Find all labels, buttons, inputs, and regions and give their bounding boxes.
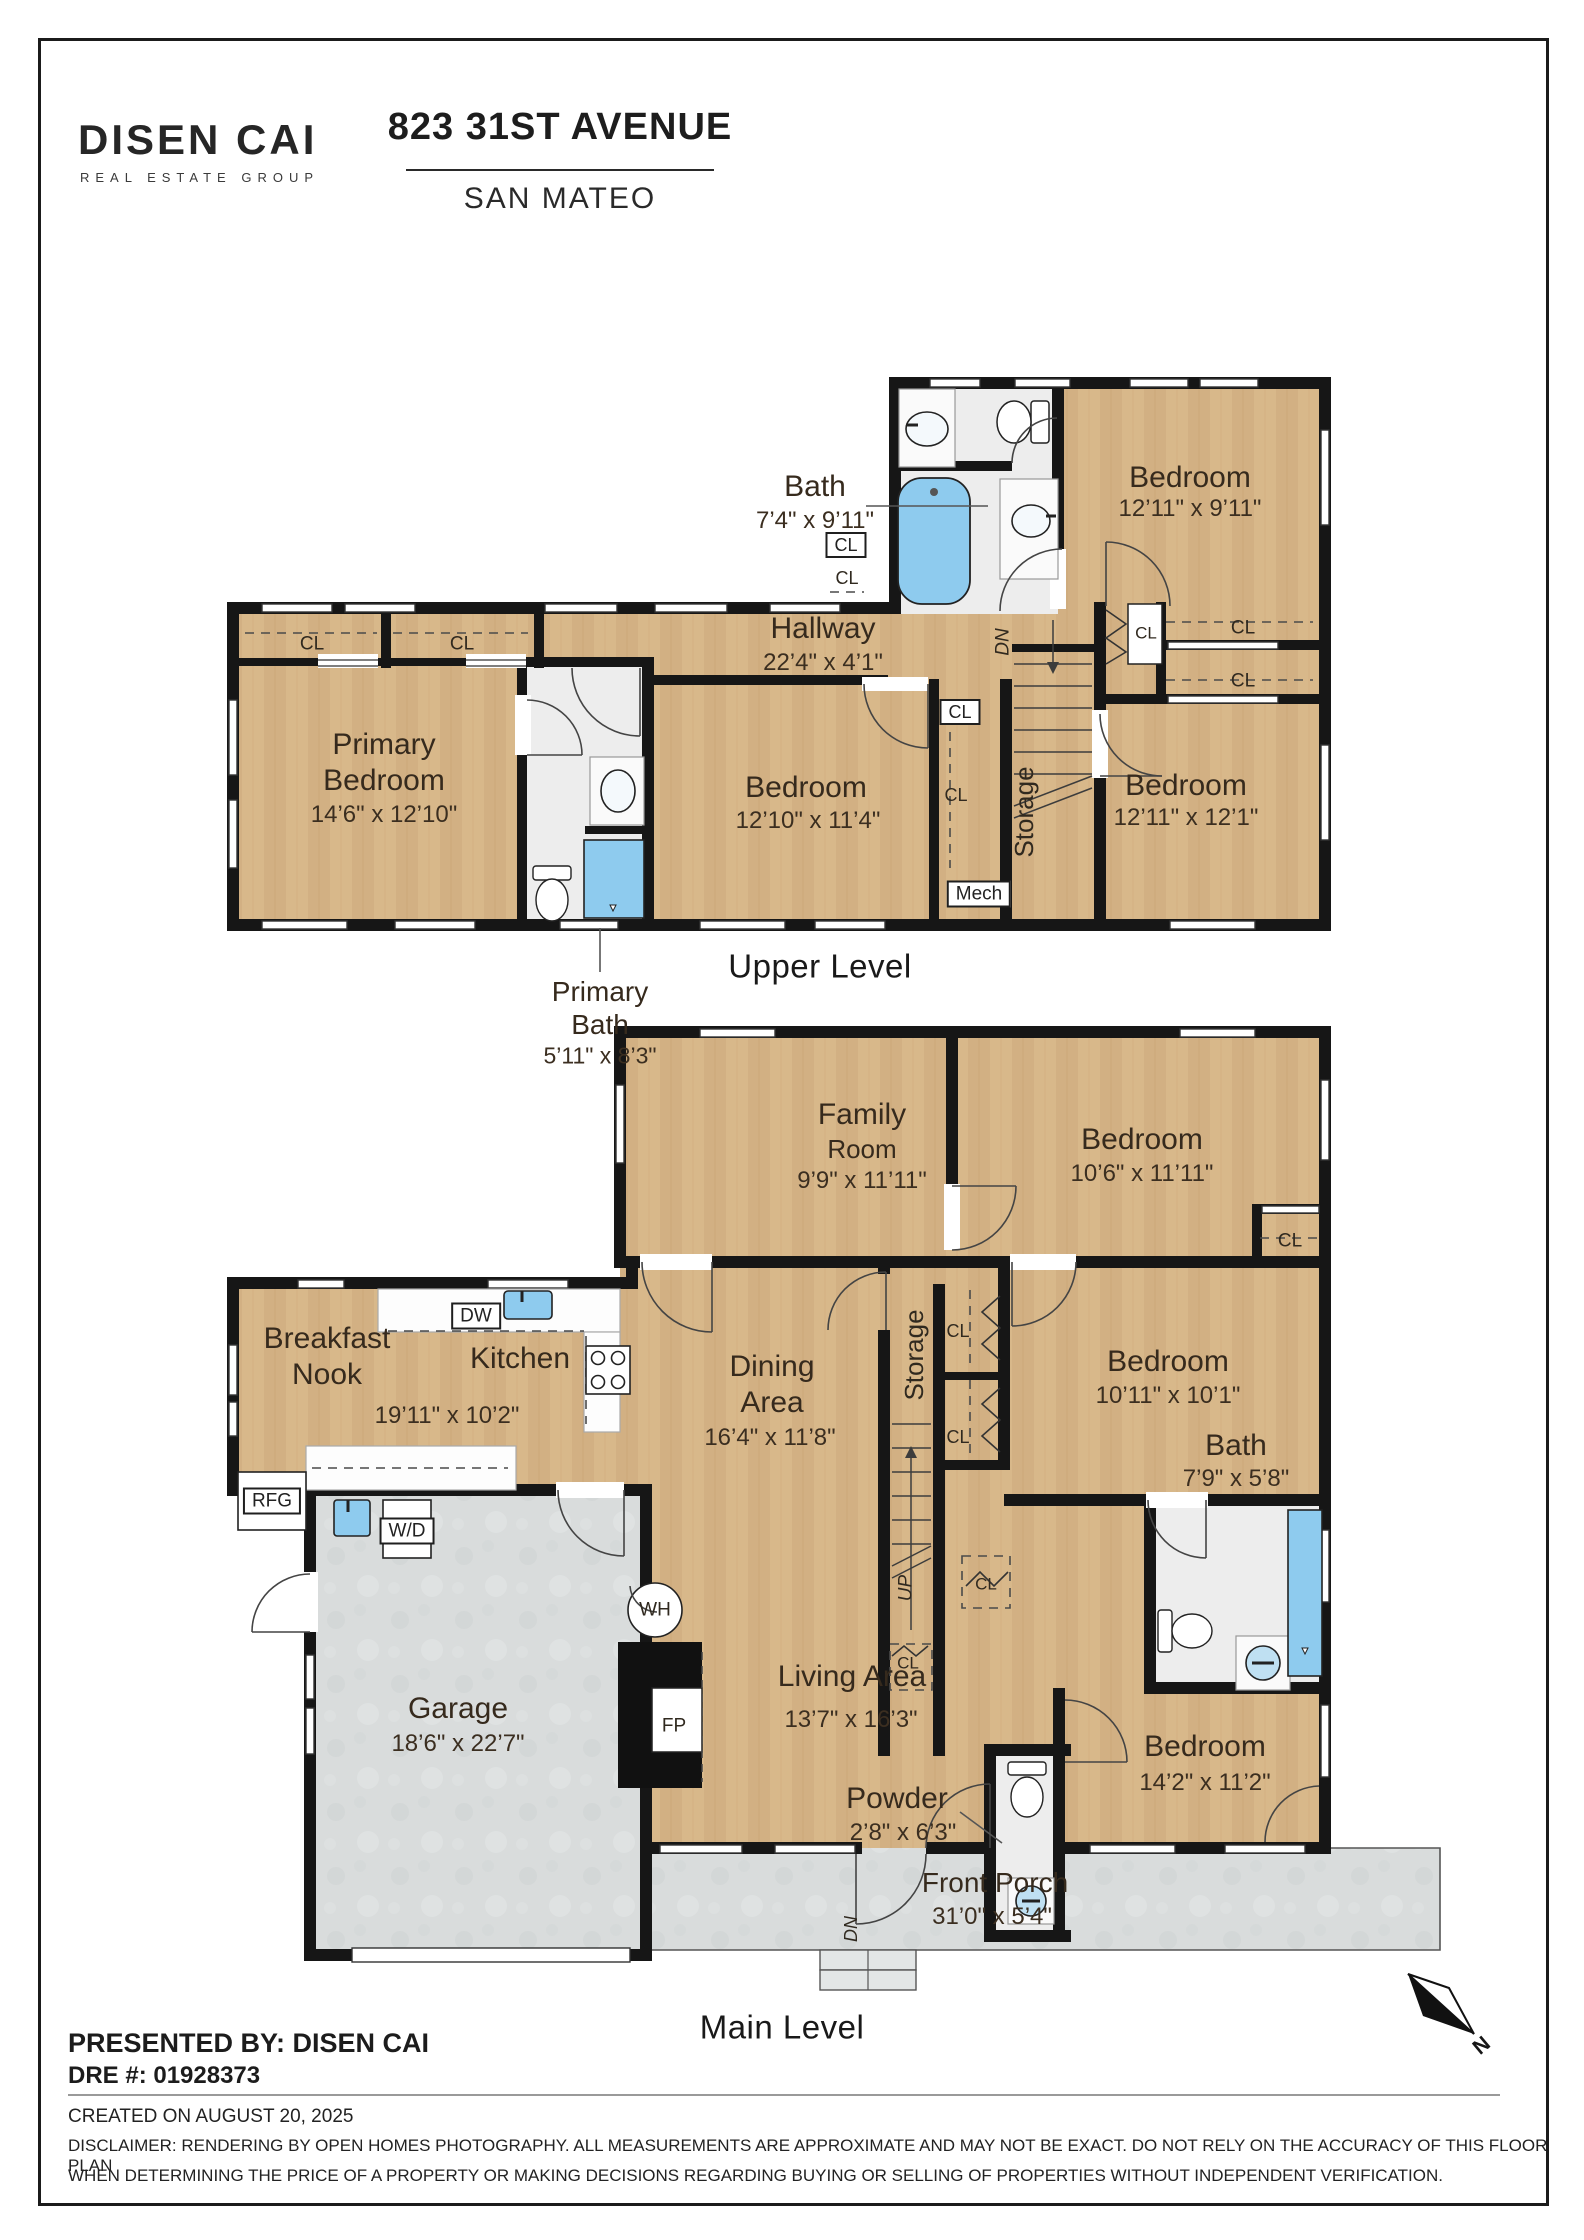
annotation-label: Storage [901, 1309, 927, 1400]
page-subtitle: SAN MATEO [380, 182, 740, 216]
room-name-label: Kitchen [470, 1344, 570, 1374]
annotation-label: CL [1135, 625, 1157, 642]
room-name-label: Bedroom [745, 773, 867, 803]
room-dims-label: 9’9" x 11’11" [797, 1169, 927, 1193]
room-name-label: Bedroom [1081, 1125, 1203, 1155]
presented-by-text: PRESENTED BY: DISEN CAI [68, 2028, 429, 2059]
annotation-label: DN [994, 628, 1013, 655]
annotation-label: CL [946, 1428, 969, 1446]
room-name-label: Front Porch [922, 1869, 1068, 1897]
annotation-label: CL [1231, 619, 1255, 638]
room-name-label: Dining [729, 1352, 814, 1382]
north-arrow-icon [1408, 1974, 1474, 2034]
annotation-label: CL [825, 532, 866, 558]
room-name-label: Nook [292, 1360, 362, 1390]
room-name-label: Room [827, 1136, 896, 1162]
room-dims-label: 10’6" x 11’11" [1071, 1162, 1214, 1186]
annotation-label: CL [1231, 672, 1255, 691]
room-name-label: Area [740, 1388, 803, 1418]
annotation-label: Storage [1011, 766, 1037, 857]
room-dims-label: 12’11" x 9’11" [1119, 497, 1262, 521]
room-dims-label: 14’2" x 11’2" [1139, 1771, 1270, 1795]
annotation-label: CL [939, 699, 980, 725]
footer-divider [68, 2094, 1500, 2096]
room-dims-label: 16’4" x 11’8" [704, 1426, 835, 1450]
room-name-label: Breakfast [264, 1324, 391, 1354]
dre-number-text: DRE #: 01928373 [68, 2062, 260, 2090]
room-name-label: Bath [784, 472, 846, 502]
room-dims-label: 5’11" x 8’3" [543, 1045, 656, 1068]
annotation-label: CL [835, 569, 858, 587]
annotation-label: CL [897, 1655, 919, 1672]
room-name-label: Bedroom [1107, 1347, 1229, 1377]
annotation-label: CL [300, 635, 324, 654]
room-dims-label: 10’11" x 10’1" [1096, 1384, 1241, 1408]
room-name-label: Bath [571, 1011, 629, 1039]
room-dims-label: 2’8" x 6’3" [850, 1821, 956, 1845]
level-title: Upper Level [728, 950, 911, 983]
room-dims-label: 12’10" x 11’4" [736, 809, 881, 833]
room-name-label: Primary [552, 978, 648, 1006]
floor-plan-flyer: DISEN CAI REAL ESTATE GROUP 823 31ST AVE… [0, 0, 1584, 2240]
room-name-label: Bedroom [1125, 771, 1247, 801]
room-dims-label: 7’9" x 5’8" [1183, 1467, 1289, 1491]
annotation-label: DW [451, 1303, 501, 1330]
annotation-label: CL [946, 1322, 969, 1340]
created-on-text: CREATED ON AUGUST 20, 2025 [68, 2106, 353, 2128]
annotation-label: CL [944, 786, 967, 804]
page-title: 823 31ST AVENUE [380, 106, 740, 149]
annotation-label: WH [639, 1601, 671, 1620]
annotation-label: CL [450, 635, 474, 654]
room-name-label: Hallway [770, 614, 875, 644]
room-name-label: Bedroom [1144, 1732, 1266, 1762]
room-dims-label: 19’11" x 10’2" [375, 1404, 520, 1428]
room-dims-label: 12’11" x 12’1" [1114, 806, 1259, 830]
room-dims-label: 18’6" x 22’7" [391, 1732, 524, 1756]
room-name-label: Powder [846, 1784, 948, 1814]
annotation-label: Mech [947, 881, 1011, 908]
annotation-label: UP [897, 1575, 916, 1601]
brand-tagline: REAL ESTATE GROUP [80, 170, 319, 185]
room-dims-label: 14’6" x 12’10" [311, 803, 457, 827]
room-dims-label: 22’4" x 4’1" [763, 651, 883, 675]
annotation-label: CL [975, 1576, 997, 1593]
room-name-label: Garage [408, 1694, 508, 1724]
level-title: Main Level [700, 2011, 865, 2044]
title-underline [406, 169, 714, 171]
room-name-label: Bedroom [1129, 463, 1251, 493]
annotation-label: FP [662, 1717, 686, 1736]
annotation-label: CL [1278, 1232, 1302, 1251]
disclaimer-line-2: WHEN DETERMINING THE PRICE OF A PROPERTY… [68, 2166, 1443, 2186]
room-dims-label: 31’0" x 5’4" [932, 1905, 1052, 1929]
room-name-label: Primary [332, 730, 435, 760]
annotation-label: RFG [243, 1488, 301, 1515]
room-dims-label: 13’7" x 16’3" [784, 1708, 917, 1732]
room-name-label: Bedroom [323, 766, 445, 796]
room-name-label: Bath [1205, 1431, 1267, 1461]
annotation-label: W/D [380, 1518, 435, 1545]
floor-plan-graphics [0, 0, 1584, 2240]
room-dims-label: 7’4" x 9’11" [756, 509, 874, 533]
brand-logo: DISEN CAI [78, 116, 317, 164]
room-name-label: Family [818, 1100, 906, 1130]
annotation-label: DN [842, 1916, 860, 1942]
